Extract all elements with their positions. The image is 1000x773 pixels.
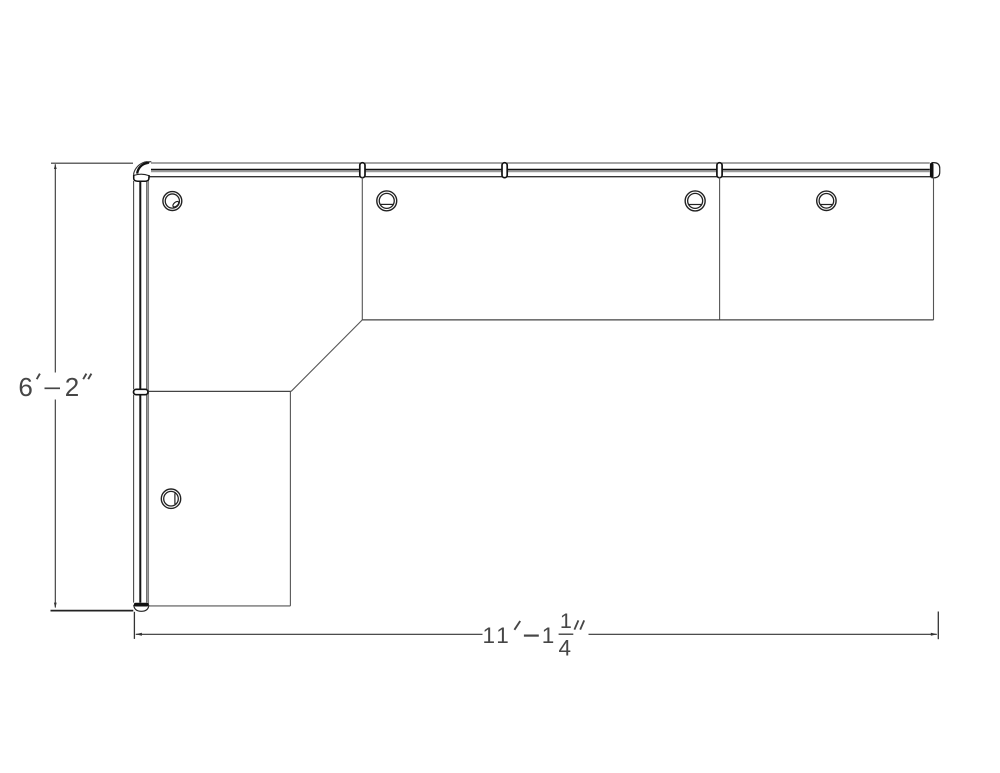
svg-text:2: 2 [65,372,79,402]
svg-text:11: 11 [483,623,512,648]
svg-text:1: 1 [560,609,572,633]
svg-text:1: 1 [542,623,555,648]
svg-text:4: 4 [559,635,572,660]
svg-text:6: 6 [18,372,32,402]
